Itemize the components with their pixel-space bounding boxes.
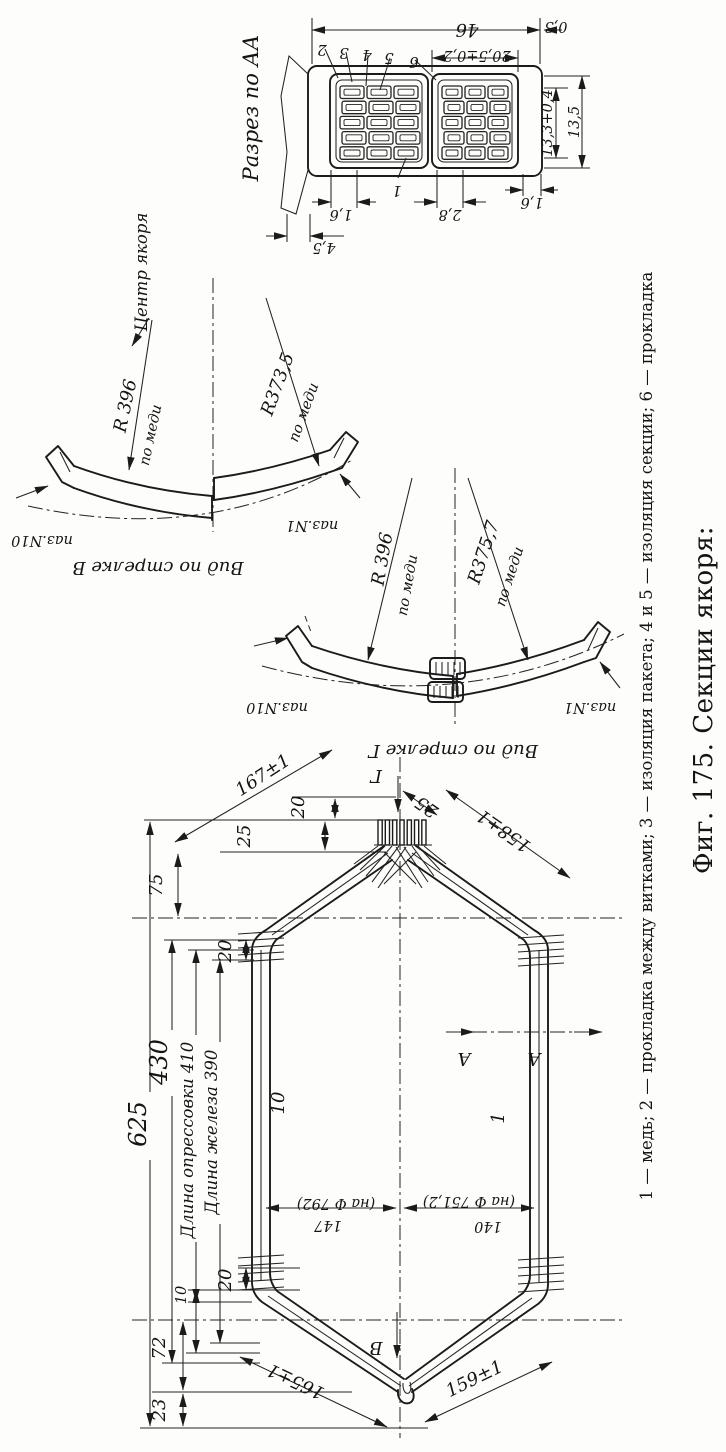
radius-3735-label: R373,5 [256,350,298,419]
dim-75-label: 75 [146,874,167,897]
arrow-g-label: Г [369,765,383,786]
dim-10-bottom-label: 10 [174,1286,190,1304]
dim-147-label: 147 [313,1217,341,1233]
figure-legend: 1 — медь; 2 — прокладка между витками; 3… [637,271,656,1200]
slot-n1-label: паз.N1 [286,517,338,533]
packet-left-outline [330,74,428,168]
arrow-b-label: В [369,1337,383,1358]
view-arrow-b: Центр якоря R 396 по меди R373,5 по меди… [11,213,360,578]
section-mark-a-left: А [457,1048,473,1069]
dim-45-label: 4,5 [312,239,336,255]
dim-03-label: 0,3 [544,18,567,34]
dim-25-top-label: 25 [234,825,255,849]
dim-28-label: 2,8 [438,206,462,222]
copper-note: по меди [137,403,166,467]
view-g-title: Вид по стрелке Г [367,740,539,761]
dim-625-label: 625 [124,1101,152,1147]
dim-25-right-label: 25 [411,791,443,822]
conductor-cells-right [442,86,510,159]
armature-sections-figure: Разрез по АА 46 0,3 20,5±0,2 13,3+0,4 13… [0,0,726,1452]
dim-23-label: 23 [149,1399,170,1423]
section-mark-a-right: А [527,1048,543,1069]
dim-205-label: 20,5±0,2 [443,47,512,63]
section-aa-title: Разрез по АА [239,35,263,183]
coil-arc-left-bottom [74,488,212,518]
dim-72-label: 72 [149,1337,170,1360]
slot-n10-label: паз.N10 [11,532,73,548]
copper-note: по меди [493,545,527,609]
coil-arc-left-bottom [312,668,453,698]
dim-46-label: 46 [456,19,480,40]
callout-5: 5 [384,49,394,67]
callout-4: 4 [362,46,373,64]
callout-6: 6 [409,53,419,71]
dim-147-note: (на Ф 792) [297,1195,375,1211]
section-view-aa: Разрез по АА 46 0,3 20,5±0,2 13,3+0,4 13… [239,18,590,255]
dim-133-label: 13,3+0,4 [540,89,556,157]
figure-caption: Фиг. 175. Секции якоря: 1 — медь; 2 — пр… [637,271,719,1200]
dim-16a-label: 1,6 [329,206,352,222]
slot-end-tab-left [286,626,312,668]
figure-title: Фиг. 175. Секции якоря: [689,526,719,874]
copper-note: по меди [395,553,421,617]
callout-3: 3 [339,44,349,62]
slot-wedge [281,56,308,214]
dim-20-nose-label: 20 [288,796,309,820]
dim-140-label: 140 [474,1218,502,1234]
slot-n1-label: паз.N1 [564,699,616,715]
coil-arc-right-top [214,450,330,478]
callout-2: 2 [317,41,328,59]
press-length-label: Длина опрессовки 410 [178,1042,197,1240]
coil-arc-right-bottom [457,662,584,696]
dim-16b-label: 1,6 [520,194,543,210]
radius-396-label: R 396 [367,531,397,588]
coil-arc-left-top [312,646,453,676]
center-of-armature-label: Центр якоря [132,213,151,333]
dim-430-label: 430 [145,1039,173,1086]
dim-167-label: 167±1 [232,750,295,801]
radius-396-label: R 396 [110,377,142,435]
radius-3757-label: R375,7 [463,518,504,588]
callout-1: 1 [392,182,402,200]
conductor-1-label: 1 [488,1112,509,1123]
dim-140-note: (на Ф 751,2) [423,1193,515,1209]
view-b-title: Вид по стрелке В [72,557,244,578]
dim-20-top-label: 20 [215,940,236,964]
coil-plan-view: 625 430 Длина опрессовки 410 Длина желез… [124,750,622,1438]
iron-length-label: Длина железа 390 [202,1050,221,1216]
coil-arc-left-top [74,466,212,496]
conductor-10-label: 10 [268,1092,289,1115]
packet-right-outline [432,74,518,168]
dim-158-label: 158±1 [473,804,535,856]
dim-20-bottom-label: 20 [215,1269,236,1293]
view-arrow-g: R 396 по меди R375,7 по меди паз.N10 паз… [246,468,624,761]
book-page: Разрез по АА 46 0,3 20,5±0,2 13,3+0,4 13… [0,0,726,1452]
dim-135-label: 13,5 [567,106,583,138]
lead-comb [378,820,426,845]
dim-165-label: 165±1 [264,1359,328,1404]
conductor-cells-left [340,86,420,159]
slot-n10-label: паз.N10 [246,699,308,715]
copper-note: по меди [286,381,322,445]
